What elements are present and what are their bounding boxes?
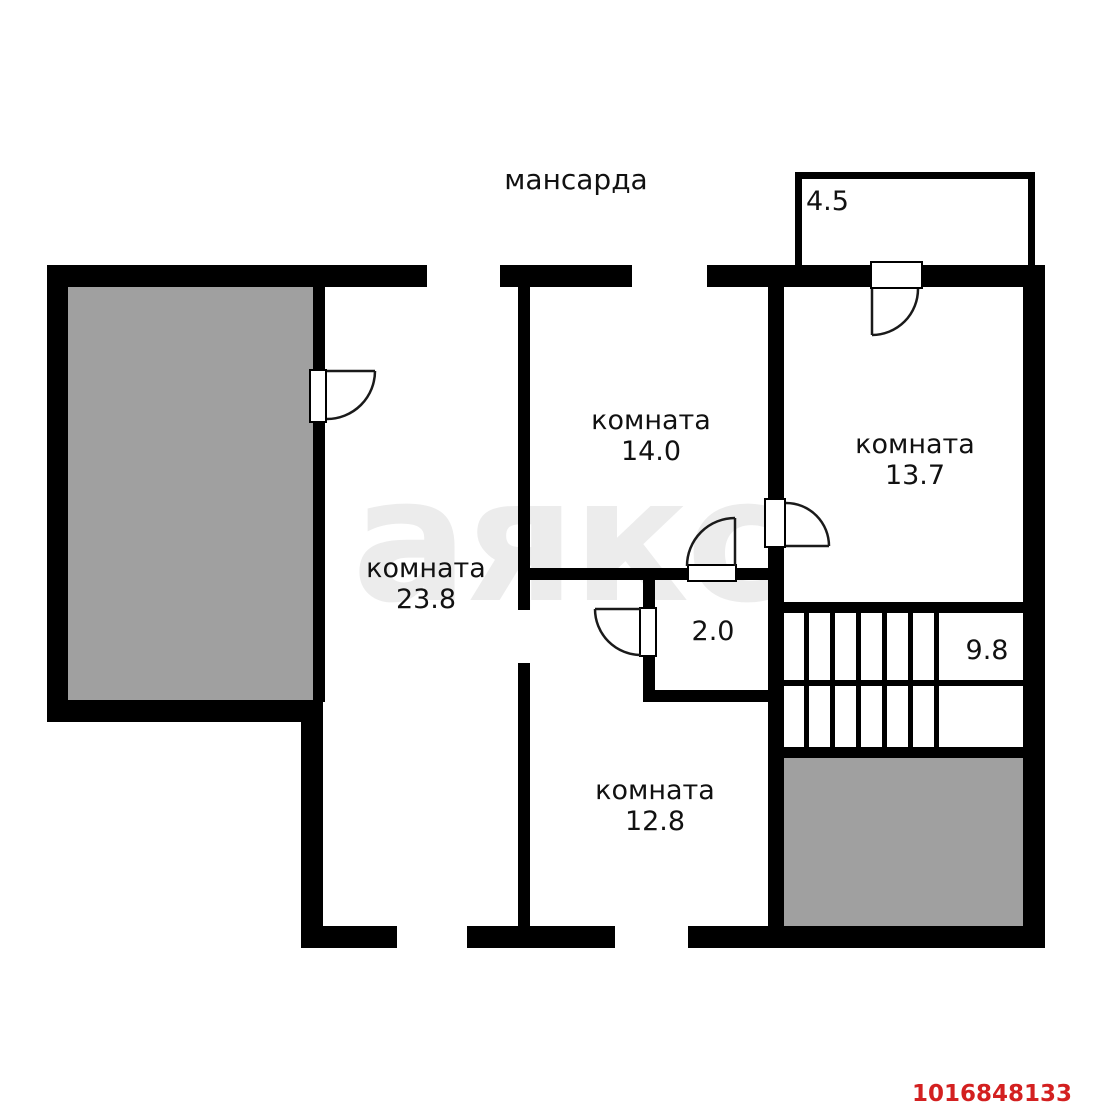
door-room137 bbox=[786, 503, 829, 546]
room-label-238: комната 23.8 bbox=[326, 553, 526, 615]
stair-tread bbox=[934, 686, 939, 747]
wall-room140-bottom-right bbox=[737, 568, 768, 580]
outer-wall-step-horizontal bbox=[47, 700, 323, 722]
stair-tread bbox=[830, 613, 835, 680]
balcony-wall-top bbox=[795, 172, 1035, 179]
stair-tread bbox=[830, 686, 835, 747]
door-balcony bbox=[872, 289, 918, 335]
door-frame-room137 bbox=[764, 498, 786, 548]
room-name: комната bbox=[555, 775, 755, 806]
wall-room140-bottom-left bbox=[530, 568, 687, 580]
staircase bbox=[784, 613, 1023, 747]
stair-tread bbox=[882, 686, 887, 747]
door-arc bbox=[327, 371, 375, 419]
door-frame-terrace bbox=[309, 369, 327, 423]
room-label-128: комната 12.8 bbox=[555, 775, 755, 837]
door-frame-balcony bbox=[870, 261, 923, 289]
stair-tread bbox=[908, 686, 913, 747]
balcony-area-label: 4.5 bbox=[806, 188, 849, 216]
stair-tread bbox=[856, 613, 861, 680]
terrace-fill bbox=[68, 283, 313, 702]
room-area: 12.8 bbox=[555, 806, 755, 837]
outer-wall-left bbox=[47, 265, 68, 722]
floor-title: мансарда bbox=[426, 163, 726, 196]
door-arc bbox=[786, 503, 829, 546]
stair-tread bbox=[882, 613, 887, 680]
outer-wall-step-vertical bbox=[301, 700, 323, 948]
wall-terrace-room bbox=[313, 283, 325, 702]
stair-landing-divider bbox=[784, 680, 1023, 686]
wall-stairs-bottom bbox=[768, 747, 1023, 758]
room-name: комната bbox=[551, 405, 751, 436]
wall-hall-bottom bbox=[643, 690, 768, 702]
window bbox=[632, 263, 707, 289]
outer-wall-right bbox=[1023, 265, 1045, 948]
wall-center-vertical-upper bbox=[768, 287, 784, 498]
gray-area-fill bbox=[784, 758, 1023, 926]
balcony-wall-left bbox=[795, 172, 802, 265]
floor-plan: аякс мансарда bbox=[0, 0, 1093, 1109]
balcony-wall-right bbox=[1028, 172, 1035, 265]
listing-id: 1016848133 bbox=[912, 1081, 1072, 1107]
wall-stairs-top bbox=[768, 602, 1023, 613]
room-area: 23.8 bbox=[326, 584, 526, 615]
stair-tread bbox=[804, 686, 809, 747]
room-name: комната bbox=[326, 553, 526, 584]
wall-room238-lower bbox=[518, 663, 530, 926]
window bbox=[427, 263, 500, 289]
room-name: комната bbox=[815, 429, 1015, 460]
room-area: 13.7 bbox=[815, 460, 1015, 491]
stair-tread bbox=[908, 613, 913, 680]
stair-tread bbox=[804, 613, 809, 680]
door-frame-room140 bbox=[687, 564, 737, 582]
stairs-area-label: 9.8 bbox=[937, 637, 1037, 665]
stair-tread bbox=[856, 686, 861, 747]
hall-area-label: 2.0 bbox=[663, 618, 763, 646]
door-terrace bbox=[327, 371, 375, 419]
room-label-137: комната 13.7 bbox=[815, 429, 1015, 491]
door-frame-hall bbox=[639, 607, 657, 657]
window bbox=[397, 924, 467, 950]
window bbox=[615, 924, 688, 950]
room-area: 14.0 bbox=[551, 436, 751, 467]
room-label-140: комната 14.0 bbox=[551, 405, 751, 467]
wall-hall-left-upper bbox=[643, 568, 655, 607]
door-arc bbox=[872, 289, 918, 335]
